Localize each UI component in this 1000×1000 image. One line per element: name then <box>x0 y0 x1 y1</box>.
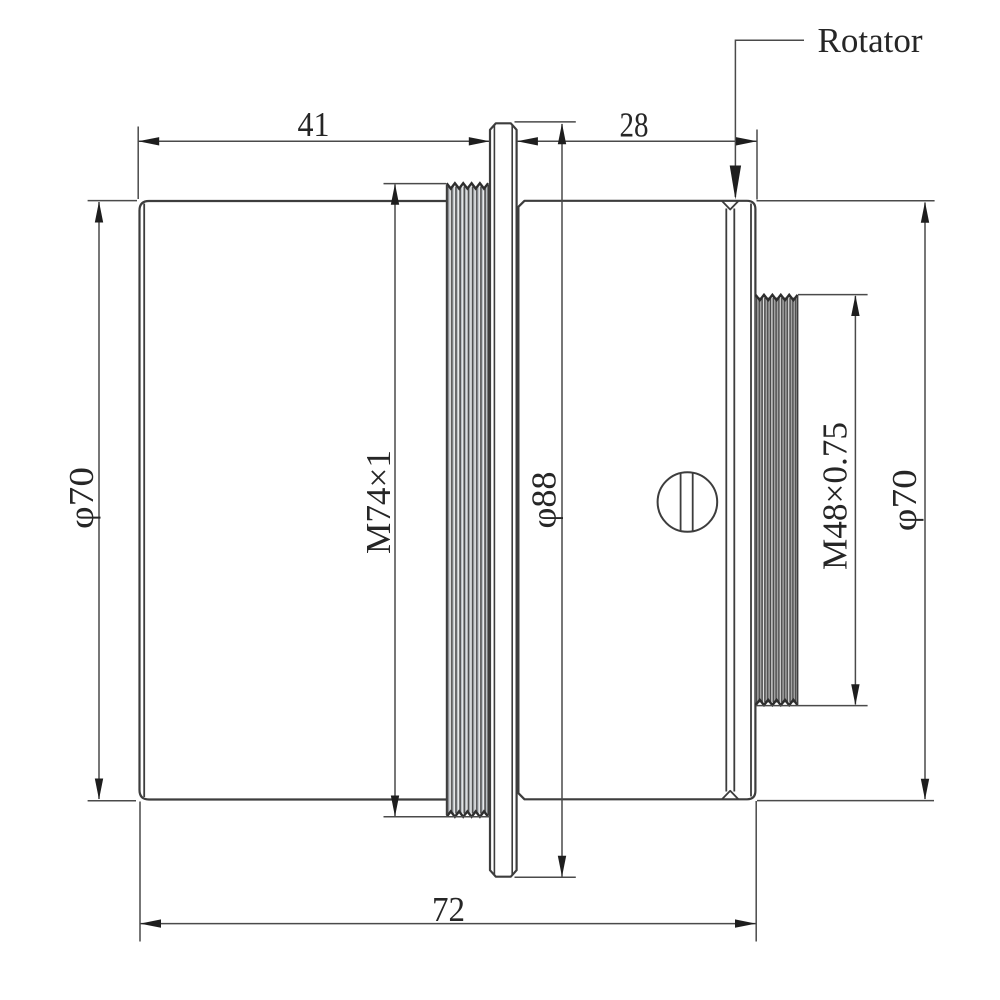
svg-text:72: 72 <box>432 890 465 929</box>
svg-text:41: 41 <box>298 105 330 144</box>
svg-text:M74×1: M74×1 <box>359 450 398 554</box>
svg-text:φ70: φ70 <box>62 467 101 529</box>
svg-text:28: 28 <box>620 106 649 145</box>
svg-text:φ70: φ70 <box>885 469 924 531</box>
svg-text:Rotator: Rotator <box>818 21 923 60</box>
svg-text:φ88: φ88 <box>525 472 564 529</box>
svg-text:M48×0.75: M48×0.75 <box>816 422 855 570</box>
